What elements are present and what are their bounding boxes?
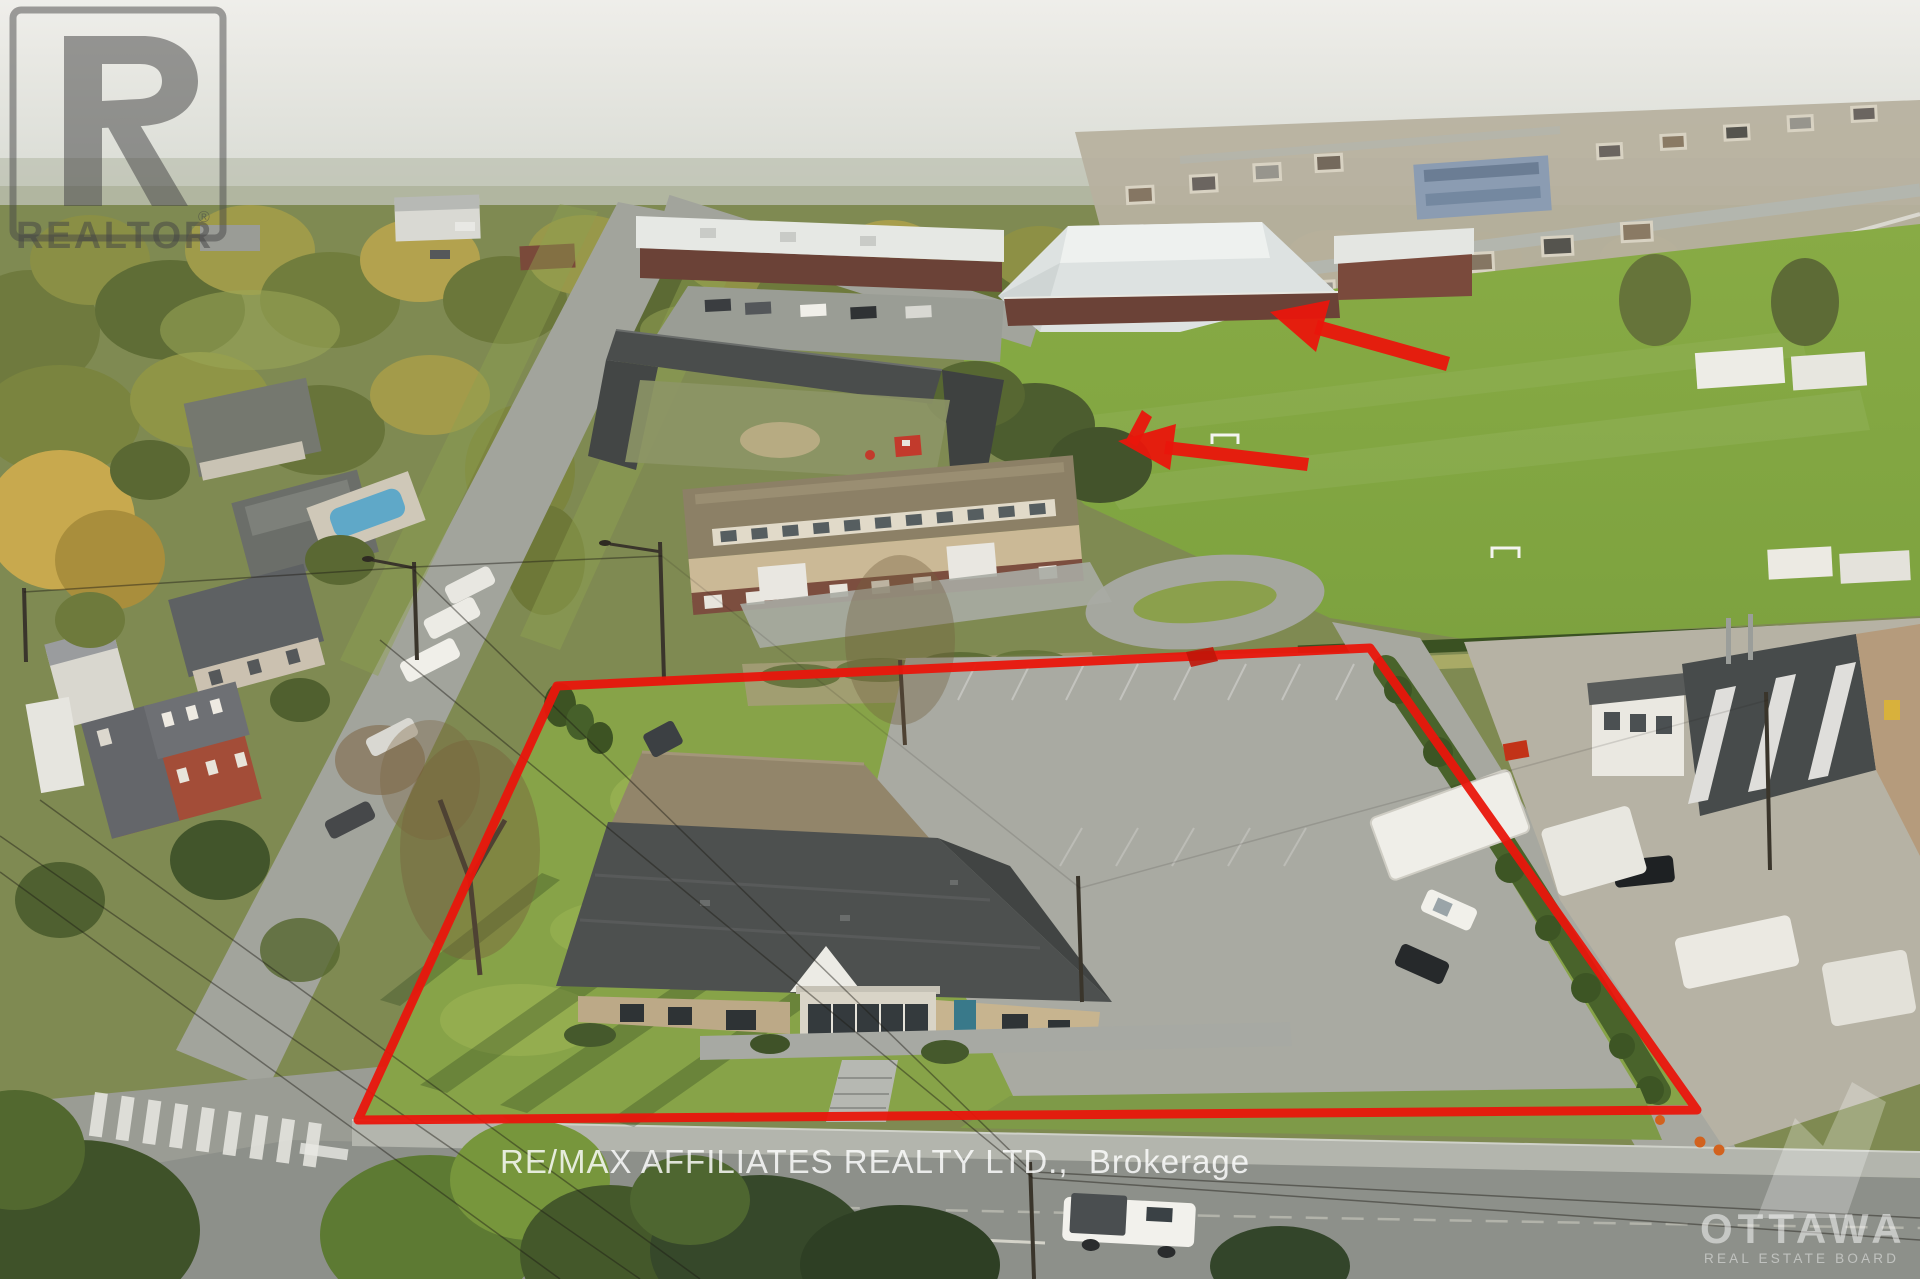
blue-sign: [954, 1000, 976, 1030]
board-subtitle: REAL ESTATE BOARD: [1704, 1251, 1899, 1266]
board-name: OTTAWA: [1700, 1205, 1907, 1252]
aerial-photo: REALTOR ® RE/MAX AFFILIATES REALTY LTD.,…: [0, 0, 1920, 1279]
registered-mark: ®: [198, 209, 210, 226]
aerial-scene: REALTOR ® RE/MAX AFFILIATES REALTY LTD.,…: [0, 0, 1920, 1279]
realtor-label: REALTOR: [16, 215, 214, 257]
brokerage-watermark: RE/MAX AFFILIATES REALTY LTD., Brokerage: [500, 1143, 1250, 1180]
